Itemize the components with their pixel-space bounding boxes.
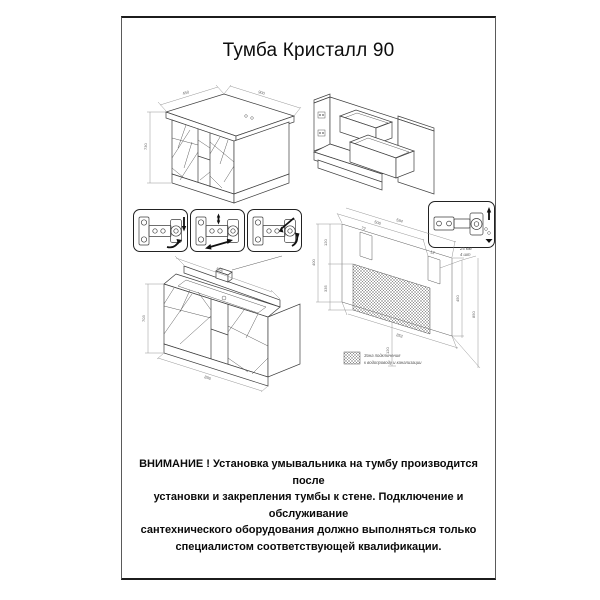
- connection-zone-hatch: [353, 264, 430, 334]
- legend-hatch-swatch: [344, 352, 360, 364]
- warning-text: ВНИМАНИЕ ! Установка умывальника на тумб…: [123, 456, 494, 555]
- hinge-icon-adjust-vertical: [134, 210, 189, 251]
- slot-dim-left-label: 72: [361, 225, 367, 231]
- warning-line-2: установки и закрепления тумбы к стене. П…: [123, 489, 494, 522]
- dim-height-label: 730: [143, 143, 148, 150]
- drawing-carcass-open: [298, 82, 466, 208]
- dim-left-upper-label: 120: [323, 239, 328, 246]
- warning-line-3: сантехнического оборудования должно выпо…: [123, 522, 494, 539]
- dim-depth-label: 450: [182, 89, 191, 96]
- note-line1: 25 мм: [459, 246, 472, 251]
- slot-dim-right-label: 12: [430, 249, 436, 255]
- fastener-note: 25 мм 4 шт: [440, 246, 476, 268]
- warning-line-4: специалистом соответствующей квалификаци…: [123, 539, 494, 556]
- page-title: Тумба Кристалл 90: [121, 40, 496, 62]
- warning-line-1: ВНИМАНИЕ ! Установка умывальника на тумб…: [123, 456, 494, 489]
- template-outline: [342, 224, 452, 336]
- legend-line2: к водопроводу и канализации: [364, 360, 422, 365]
- dim-far-right-label: 850: [471, 311, 476, 318]
- dim-top-label: 594: [396, 217, 405, 224]
- hinge-icon-adjust-depth: [191, 210, 246, 251]
- drawing-wall-template: 400 120 335 506 594 450 850 852 120 72 1…: [304, 208, 496, 386]
- dim-height-label: 703: [141, 315, 146, 322]
- dim-bottom-label: 852: [396, 332, 405, 339]
- note-line2: 4 шт: [460, 252, 471, 257]
- dim-left-mid-label: 335: [323, 285, 328, 292]
- drawing-cabinet-sink-view: 703 556 896: [132, 246, 332, 398]
- legend-line1: Зона подключения: [364, 353, 401, 358]
- dim-bottom-label: 896: [204, 374, 213, 381]
- dim-right-label: 450: [455, 295, 460, 302]
- legend: Зона подключения к водопроводу и канализ…: [344, 352, 422, 365]
- hinge-icon-mount: [248, 210, 303, 251]
- dim-far-left-label: 400: [311, 259, 316, 266]
